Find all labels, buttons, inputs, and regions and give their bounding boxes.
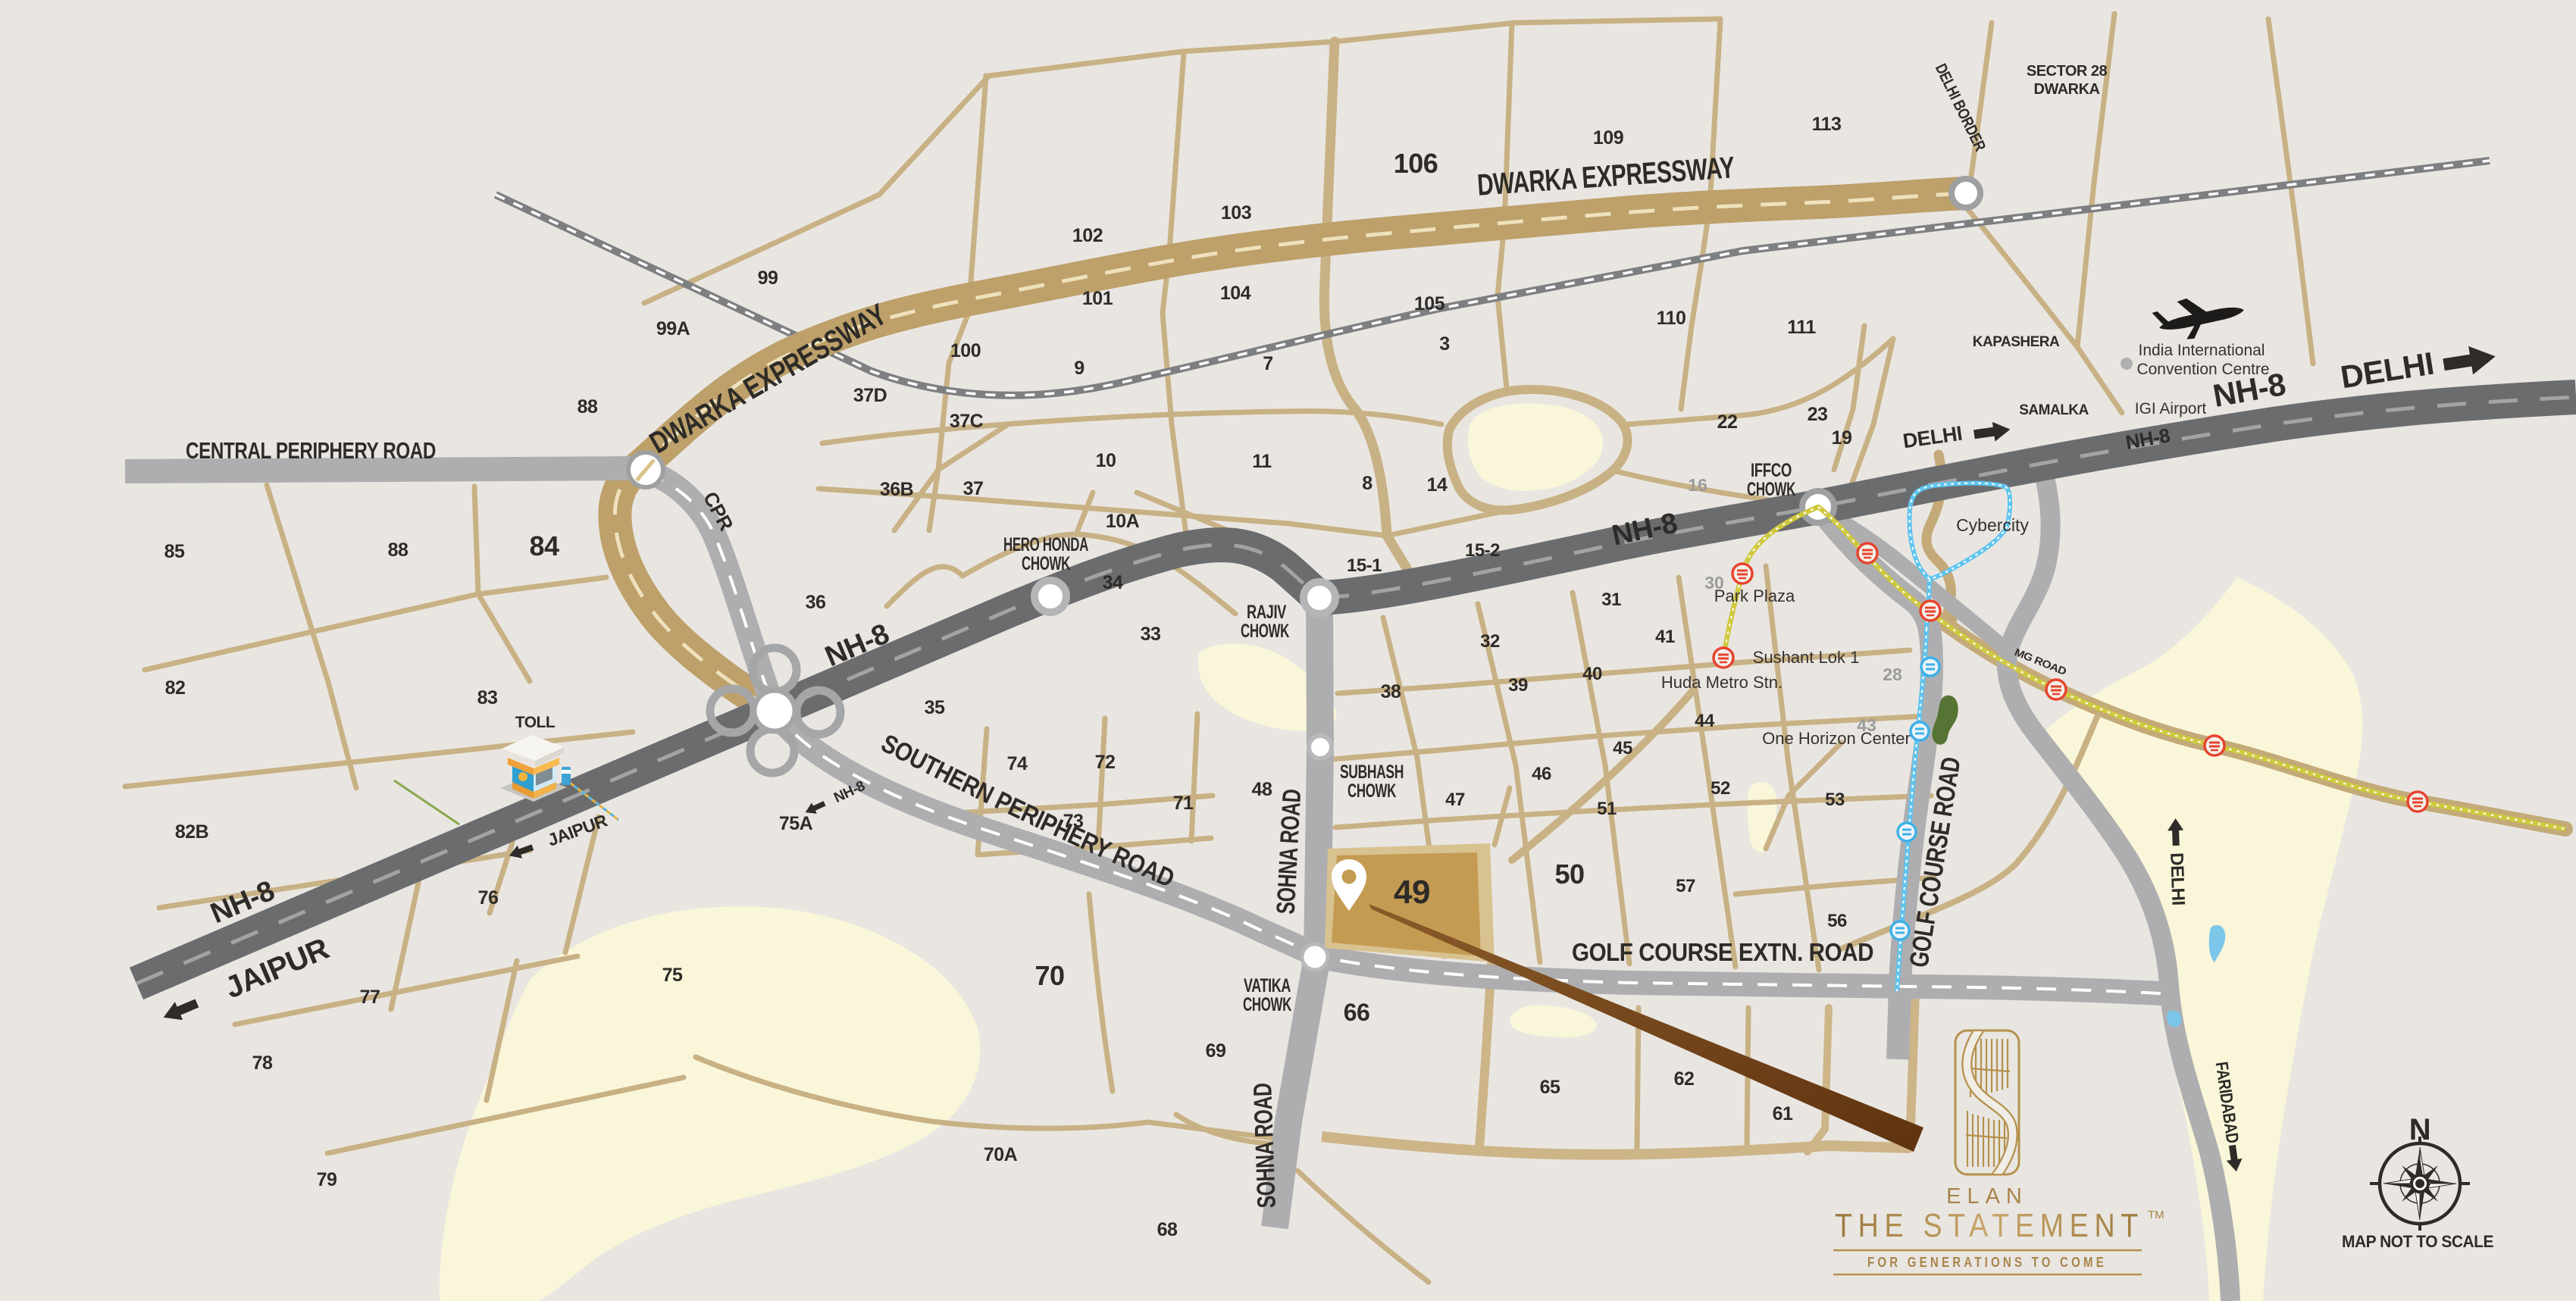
svg-text:Park Plaza: Park Plaza <box>1714 586 1795 605</box>
svg-text:31: 31 <box>1601 590 1621 610</box>
svg-text:38: 38 <box>1381 681 1401 702</box>
svg-text:39: 39 <box>1508 675 1528 696</box>
svg-text:68: 68 <box>1157 1219 1178 1240</box>
svg-text:62: 62 <box>1674 1068 1695 1090</box>
svg-text:88: 88 <box>577 396 598 418</box>
svg-text:35: 35 <box>925 697 945 718</box>
svg-text:101: 101 <box>1082 288 1113 309</box>
svg-text:99: 99 <box>758 267 778 289</box>
svg-text:61: 61 <box>1773 1103 1793 1124</box>
svg-text:23: 23 <box>1808 404 1828 425</box>
svg-text:65: 65 <box>1540 1077 1560 1098</box>
svg-text:49: 49 <box>1394 874 1430 911</box>
svg-text:TOLL: TOLL <box>515 714 556 731</box>
svg-text:56: 56 <box>1827 911 1847 931</box>
svg-text:THE STATEMENT: THE STATEMENT <box>1835 1207 2144 1244</box>
svg-text:VATIKA: VATIKA <box>1244 975 1291 996</box>
svg-text:CHOWK: CHOWK <box>1747 479 1795 500</box>
svg-text:KAPASHERA: KAPASHERA <box>1973 334 2060 350</box>
svg-text:7: 7 <box>1263 353 1272 374</box>
svg-text:82B: 82B <box>175 821 208 843</box>
svg-text:RAJIV: RAJIV <box>1247 602 1287 623</box>
svg-text:ELAN: ELAN <box>1946 1184 2028 1209</box>
svg-text:72: 72 <box>1095 752 1116 773</box>
svg-text:40: 40 <box>1582 664 1602 684</box>
svg-text:111: 111 <box>1787 317 1816 338</box>
svg-text:Cybercity: Cybercity <box>1956 515 2029 535</box>
svg-text:70: 70 <box>1034 960 1064 991</box>
svg-text:HERO HONDA: HERO HONDA <box>1003 534 1088 555</box>
svg-text:66: 66 <box>1344 999 1370 1026</box>
svg-text:50: 50 <box>1554 858 1584 890</box>
svg-text:100: 100 <box>950 340 981 361</box>
svg-text:103: 103 <box>1221 202 1251 224</box>
svg-text:45: 45 <box>1613 738 1632 758</box>
svg-text:105: 105 <box>1414 293 1445 314</box>
svg-text:15-2: 15-2 <box>1465 540 1500 561</box>
svg-text:22: 22 <box>1717 411 1738 433</box>
svg-text:CHOWK: CHOWK <box>1022 553 1070 574</box>
svg-text:IFFCO: IFFCO <box>1751 460 1792 481</box>
svg-text:SECTOR 28: SECTOR 28 <box>2027 63 2108 80</box>
svg-text:53: 53 <box>1825 790 1845 810</box>
svg-text:SUBHASH: SUBHASH <box>1340 762 1404 783</box>
svg-text:73: 73 <box>1063 811 1084 832</box>
svg-text:70A: 70A <box>984 1144 1018 1165</box>
svg-text:84: 84 <box>529 530 559 561</box>
svg-text:78: 78 <box>252 1052 273 1074</box>
svg-text:36: 36 <box>806 592 826 613</box>
svg-text:37C: 37C <box>950 411 984 432</box>
svg-text:9: 9 <box>1074 358 1084 379</box>
svg-text:69: 69 <box>1206 1040 1226 1062</box>
svg-text:41: 41 <box>1655 627 1675 647</box>
svg-text:102: 102 <box>1072 225 1103 246</box>
svg-text:30: 30 <box>1704 573 1724 593</box>
svg-text:85: 85 <box>164 541 185 562</box>
svg-text:DELHI: DELHI <box>2166 852 2188 905</box>
svg-text:106: 106 <box>1394 148 1438 179</box>
svg-text:TM: TM <box>2148 1209 2164 1221</box>
svg-text:SAMALKA: SAMALKA <box>2019 402 2089 418</box>
svg-text:India International: India International <box>2139 342 2265 359</box>
svg-text:110: 110 <box>1657 308 1686 329</box>
svg-text:43: 43 <box>1857 715 1876 735</box>
svg-text:CENTRAL PERIPHERY ROAD: CENTRAL PERIPHERY ROAD <box>186 437 436 464</box>
svg-text:104: 104 <box>1220 283 1251 304</box>
svg-text:SOHNA ROAD: SOHNA ROAD <box>1248 1083 1282 1209</box>
svg-text:Huda Metro Stn.: Huda Metro Stn. <box>1661 673 1783 692</box>
svg-text:113: 113 <box>1812 114 1842 135</box>
svg-text:11: 11 <box>1252 451 1272 472</box>
svg-text:75A: 75A <box>779 813 813 834</box>
svg-text:88: 88 <box>388 539 408 561</box>
svg-text:74: 74 <box>1007 753 1028 774</box>
svg-text:MAP NOT TO SCALE: MAP NOT TO SCALE <box>2342 1232 2493 1251</box>
svg-text:Sushant Lok 1: Sushant Lok 1 <box>1753 648 1860 667</box>
svg-text:IGI Airport: IGI Airport <box>2135 400 2207 418</box>
svg-text:109: 109 <box>1593 127 1623 149</box>
svg-text:79: 79 <box>317 1169 337 1190</box>
svg-text:16: 16 <box>1688 475 1707 495</box>
svg-text:51: 51 <box>1597 799 1617 819</box>
svg-text:10A: 10A <box>1106 511 1140 532</box>
svg-text:3: 3 <box>1439 333 1449 355</box>
svg-text:77: 77 <box>360 987 380 1008</box>
svg-text:37D: 37D <box>853 385 887 406</box>
svg-text:71: 71 <box>1173 793 1194 814</box>
svg-text:36B: 36B <box>880 479 913 500</box>
svg-text:One Horizon Center: One Horizon Center <box>1762 729 1911 748</box>
svg-text:37: 37 <box>963 478 984 499</box>
svg-text:76: 76 <box>478 887 499 909</box>
svg-text:48: 48 <box>1252 779 1272 800</box>
svg-text:75: 75 <box>662 965 683 986</box>
svg-text:CHOWK: CHOWK <box>1243 994 1291 1015</box>
svg-text:15-1: 15-1 <box>1347 555 1382 576</box>
svg-text:GOLF COURSE EXTN. ROAD: GOLF COURSE EXTN. ROAD <box>1572 938 1873 966</box>
svg-text:34: 34 <box>1103 572 1123 593</box>
svg-text:83: 83 <box>477 687 498 708</box>
svg-text:47: 47 <box>1445 790 1465 810</box>
svg-text:CHOWK: CHOWK <box>1347 780 1396 802</box>
svg-text:44: 44 <box>1695 711 1715 731</box>
svg-text:CHOWK: CHOWK <box>1241 621 1289 642</box>
svg-text:32: 32 <box>1480 631 1500 652</box>
svg-text:DWARKA: DWARKA <box>2034 81 2100 98</box>
svg-text:52: 52 <box>1711 778 1730 799</box>
svg-text:10: 10 <box>1096 450 1116 471</box>
svg-text:33: 33 <box>1141 624 1161 645</box>
svg-text:99A: 99A <box>656 318 690 339</box>
svg-text:Convention Centre: Convention Centre <box>2136 361 2269 378</box>
svg-text:46: 46 <box>1532 764 1551 784</box>
svg-text:28: 28 <box>1883 665 1902 684</box>
svg-text:57: 57 <box>1676 876 1695 896</box>
svg-text:8: 8 <box>1362 473 1373 494</box>
svg-text:14: 14 <box>1427 474 1448 496</box>
svg-text:FOR GENERATIONS TO COME: FOR GENERATIONS TO COME <box>1867 1255 2107 1270</box>
svg-text:82: 82 <box>165 677 186 699</box>
svg-text:19: 19 <box>1832 427 1852 449</box>
svg-text:N: N <box>2409 1113 2430 1146</box>
